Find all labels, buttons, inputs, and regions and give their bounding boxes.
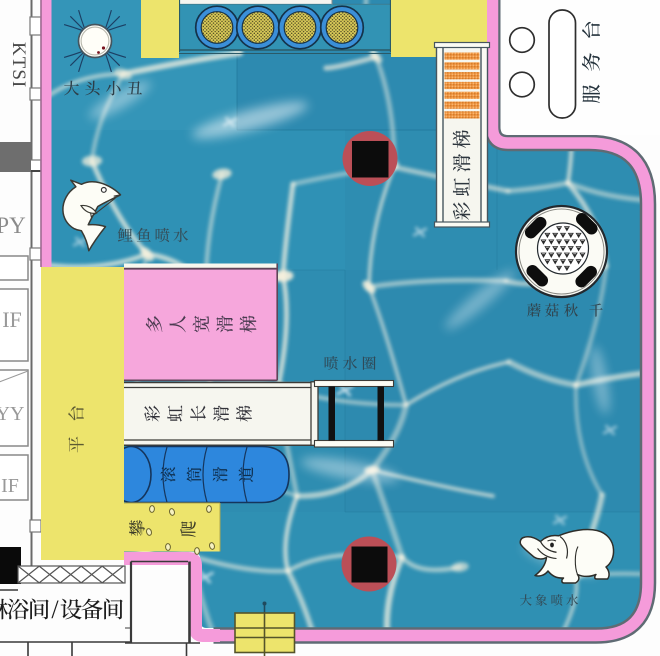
svg-text:YY: YY: [0, 403, 24, 425]
svg-text:KTSI: KTSI: [8, 42, 29, 88]
svg-text:IF: IF: [2, 307, 22, 332]
svg-text:/: /: [51, 595, 59, 624]
svg-text:IF: IF: [1, 475, 19, 497]
svg-text:PY: PY: [0, 213, 26, 238]
